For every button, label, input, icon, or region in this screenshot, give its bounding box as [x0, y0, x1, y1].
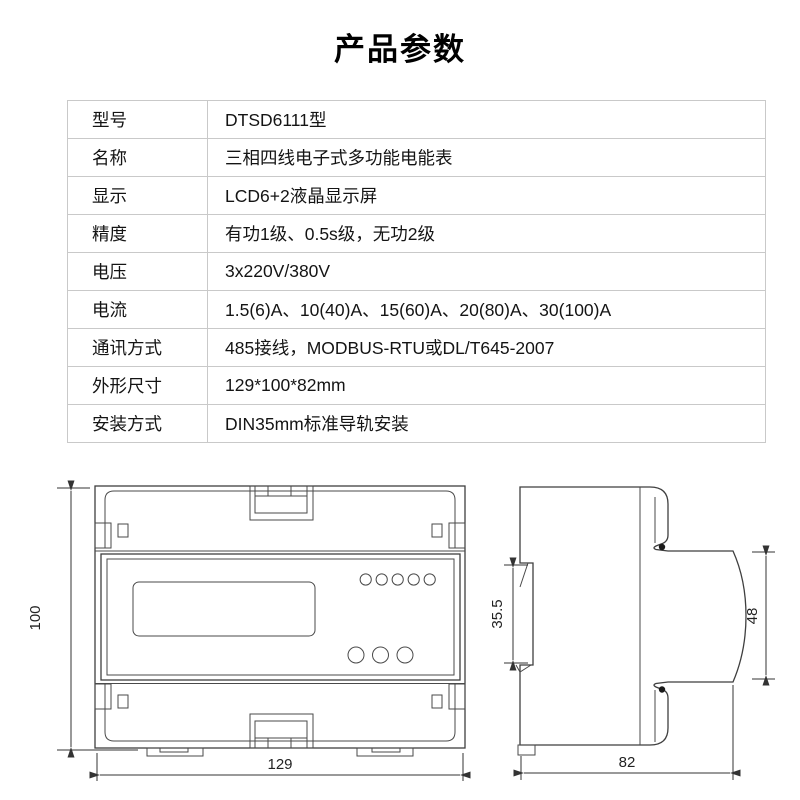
dim-width-label: 129: [267, 756, 292, 773]
table-row: 通讯方式 485接线，MODBUS-RTU或DL/T645-2007: [68, 329, 766, 367]
screw-hole: [432, 524, 442, 537]
spec-value-mounting: DIN35mm标准导轨安装: [208, 405, 766, 443]
dim-face-height-label: 48: [744, 608, 761, 625]
seal-notch: [449, 523, 465, 548]
led-indicator: [424, 574, 435, 585]
spec-value-communication: 485接线，MODBUS-RTU或DL/T645-2007: [208, 329, 766, 367]
led-indicator: [392, 574, 403, 585]
button-circle: [397, 647, 413, 663]
button-circle: [348, 647, 364, 663]
panel-buttons: [348, 647, 413, 663]
table-row: 显示 LCD6+2液晶显示屏: [68, 177, 766, 215]
table-row: 电压 3x220V/380V: [68, 253, 766, 291]
side-view-drawing: 35.5 48 82: [489, 487, 775, 780]
mounting-foot: [518, 745, 535, 755]
lcd-screen: [133, 582, 315, 636]
table-row: 名称 三相四线电子式多功能电能表: [68, 139, 766, 177]
spec-label-display: 显示: [68, 177, 208, 215]
dim-depth-label: 82: [619, 754, 636, 771]
spec-table: 型号 DTSD6111型 名称 三相四线电子式多功能电能表 显示 LCD6+2液…: [67, 100, 766, 443]
din-clip-hook: [520, 563, 528, 587]
technical-drawings: 100 129: [0, 460, 800, 800]
table-row: 精度 有功1级、0.5s级，无功2级: [68, 215, 766, 253]
bottom-terminal-cover: [105, 684, 455, 741]
dimension-face-height: 48: [744, 552, 775, 679]
table-row: 安装方式 DIN35mm标准导轨安装: [68, 405, 766, 443]
front-panel: [101, 554, 460, 680]
dim-rail-slot-label: 35.5: [489, 599, 506, 628]
product-parameter-sheet: 产品参数 型号 DTSD6111型 名称 三相四线电子式多功能电能表 显示 LC…: [0, 0, 800, 800]
spec-value-current: 1.5(6)A、10(40)A、15(60)A、20(80)A、30(100)A: [208, 291, 766, 329]
front-view-drawing: 100 129: [27, 486, 465, 781]
latch-screw: [659, 686, 665, 692]
dim-height-label: 100: [27, 605, 44, 630]
din-clip-hook: [516, 665, 531, 672]
spec-label-communication: 通讯方式: [68, 329, 208, 367]
screw-hole: [432, 695, 442, 708]
spec-value-dimensions: 129*100*82mm: [208, 367, 766, 405]
spec-label-dimensions: 外形尺寸: [68, 367, 208, 405]
meter-front-outline: [95, 486, 465, 748]
dimension-front-height: 100: [27, 488, 138, 750]
page-title: 产品参数: [0, 24, 800, 69]
seal-notch: [449, 684, 465, 709]
button-circle: [373, 647, 389, 663]
spec-value-name: 三相四线电子式多功能电能表: [208, 139, 766, 177]
seal-notch: [95, 523, 111, 548]
spec-label-current: 电流: [68, 291, 208, 329]
screw-hole: [118, 695, 128, 708]
spec-label-accuracy: 精度: [68, 215, 208, 253]
table-row: 外形尺寸 129*100*82mm: [68, 367, 766, 405]
led-indicator: [408, 574, 419, 585]
latch-screw: [659, 544, 665, 550]
screw-hole: [118, 524, 128, 537]
led-indicator: [360, 574, 371, 585]
spec-value-model: DTSD6111型: [208, 101, 766, 139]
spec-value-display: LCD6+2液晶显示屏: [208, 177, 766, 215]
led-indicator: [376, 574, 387, 585]
meter-side-outline: [520, 487, 746, 745]
spec-label-mounting: 安装方式: [68, 405, 208, 443]
spec-label-model: 型号: [68, 101, 208, 139]
spec-label-name: 名称: [68, 139, 208, 177]
spec-value-voltage: 3x220V/380V: [208, 253, 766, 291]
dimension-depth: 82: [521, 685, 733, 780]
table-row: 电流 1.5(6)A、10(40)A、15(60)A、20(80)A、30(10…: [68, 291, 766, 329]
table-row: 型号 DTSD6111型: [68, 101, 766, 139]
dimension-front-width: 129: [97, 753, 463, 781]
seal-notch: [95, 684, 111, 709]
led-indicators: [360, 574, 435, 585]
spec-label-voltage: 电压: [68, 253, 208, 291]
spec-value-accuracy: 有功1级、0.5s级，无功2级: [208, 215, 766, 253]
bottom-clip: [250, 714, 313, 748]
